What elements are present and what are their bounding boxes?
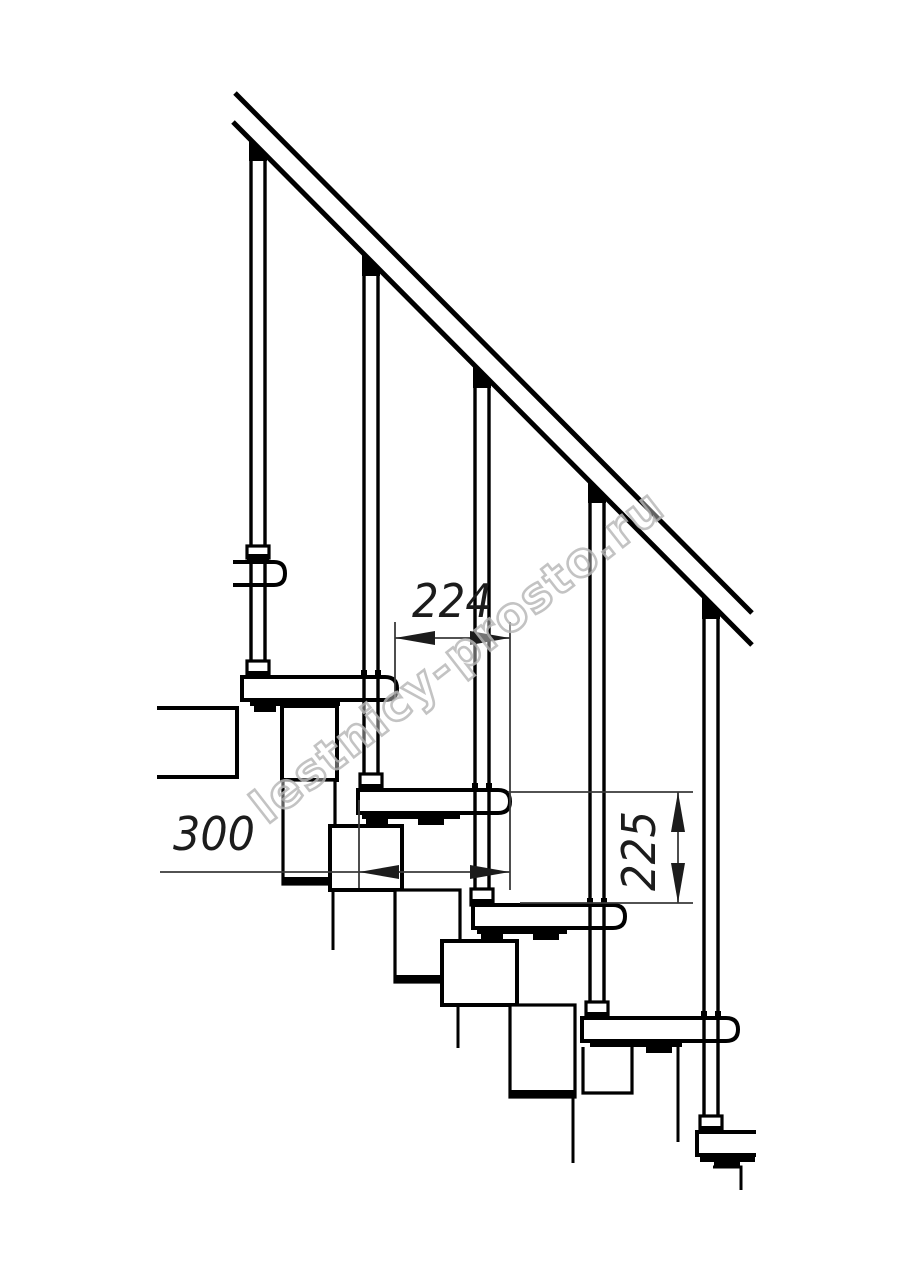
tread-4: [582, 1018, 738, 1041]
staircase-drawing: 224 300 225 lestnicy-prosto.ru: [0, 0, 914, 1280]
dimension-label-225: 225: [612, 811, 666, 891]
step-cross-nub: [715, 1011, 721, 1018]
module-assembly-5: [700, 1155, 755, 1190]
baluster-mid-collar-base: [247, 554, 269, 562]
step-cross-nub: [361, 670, 367, 677]
baluster-foot-base: [360, 784, 382, 790]
module-body: [330, 826, 402, 890]
step-cross-nub: [701, 1011, 707, 1018]
module-leg: [510, 1005, 575, 1097]
baluster-1: [247, 138, 269, 677]
watermark-text: lestnicy-prosto.ru: [240, 478, 674, 834]
step-cross-nub: [472, 783, 478, 790]
left-landing-stub: [157, 708, 237, 777]
module-assembly-3: [442, 928, 575, 1163]
baluster-foot-base: [247, 671, 269, 677]
module-assembly-2: [330, 813, 460, 1048]
tread-2: [358, 790, 510, 813]
module-leg-base: [510, 1090, 575, 1097]
module-body: [442, 941, 517, 1005]
step-cross-nub: [587, 898, 593, 905]
baluster-foot-base: [586, 1012, 608, 1018]
dimension-label-300: 300: [173, 807, 255, 861]
tread-lower-partial: [697, 1132, 756, 1155]
module-tab: [254, 706, 276, 712]
baluster-rail-cap: [249, 138, 267, 161]
arrow-up-icon: [671, 792, 685, 832]
tread-upper-partial: [233, 562, 285, 585]
baluster-rail-cap: [588, 480, 606, 503]
module-tab: [418, 819, 444, 825]
module-leg-base: [283, 877, 335, 884]
tread-3: [473, 905, 625, 928]
module-tab: [646, 1047, 672, 1053]
module-leg-extension: [713, 1167, 741, 1190]
baluster-5: [700, 595, 722, 1132]
module-assembly-4: [583, 1041, 682, 1142]
step-cross-nub: [375, 670, 381, 677]
module-tab: [533, 934, 559, 940]
baluster-foot-base: [471, 899, 493, 905]
module-body-partial: [583, 1047, 632, 1093]
step-cross-nub: [486, 783, 492, 790]
dimension-225: 225: [508, 792, 693, 903]
arrow-down-icon: [671, 863, 685, 903]
step-cross-nub: [601, 898, 607, 905]
handrail: [233, 93, 752, 645]
handrail-bottom-line: [233, 122, 752, 645]
handrail-top-line: [235, 93, 752, 613]
baluster-foot-base: [700, 1126, 722, 1132]
staircase-drawing-page: 224 300 225 lestnicy-prosto.ru: [0, 0, 914, 1280]
